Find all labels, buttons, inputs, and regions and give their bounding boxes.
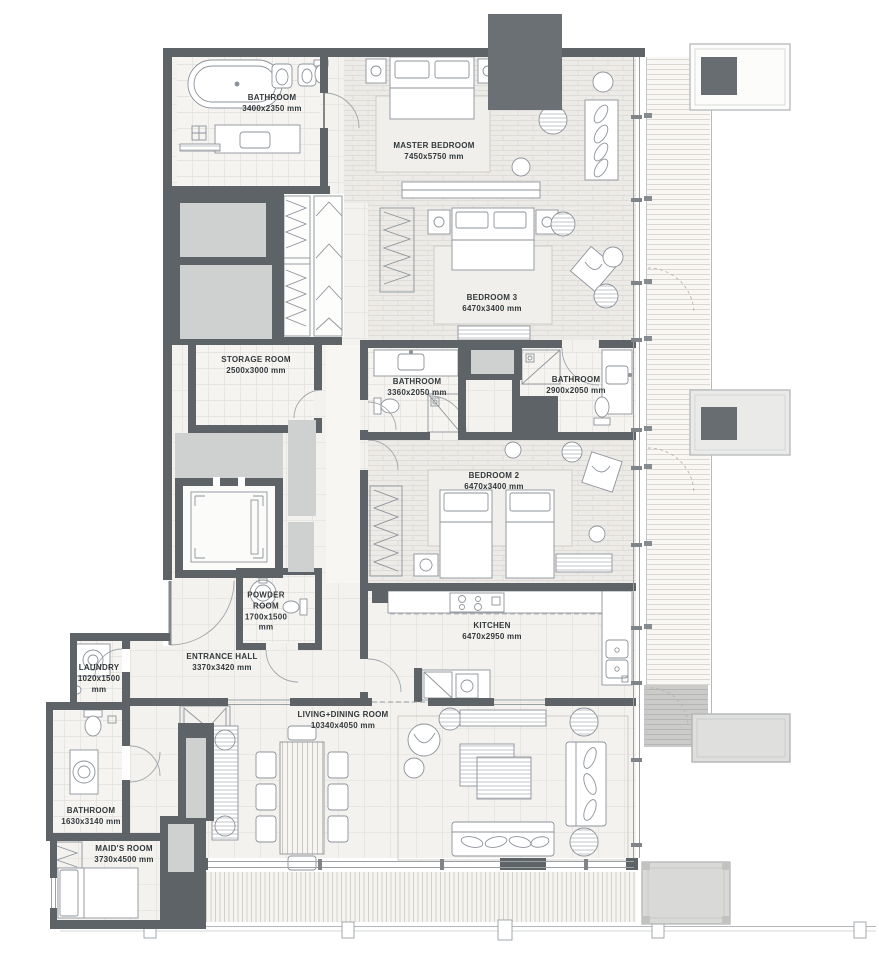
room-dims: 2500x3000 mm (221, 366, 291, 377)
round-table (570, 708, 598, 736)
room-label-bathroom-master: BATHROOM 3400x2350 mm (242, 93, 302, 115)
sofa-right (566, 742, 606, 826)
coffee-table (477, 757, 531, 799)
room-dims: 10340x4050 mm (298, 721, 389, 732)
lounge-armchair (408, 724, 440, 756)
armchair (539, 106, 567, 134)
bench (556, 554, 612, 572)
side-table (505, 442, 521, 458)
console (585, 100, 618, 180)
sink (272, 64, 292, 88)
room-name: KITCHEN (462, 621, 522, 632)
room-name: STORAGE ROOM (221, 355, 291, 366)
sofa-bottom (452, 822, 554, 856)
room-label-bedroom-2: BEDROOM 2 6470x3400 mm (464, 471, 524, 493)
sideboard (212, 726, 238, 840)
room-name: BEDROOM 2 (464, 471, 524, 482)
room-label-laundry: LAUNDRY 1020x1500 mm (71, 663, 127, 695)
bedroom2-bed (440, 490, 492, 578)
pouf (512, 158, 530, 176)
room-label-entrance-hall: ENTRANCE HALL 3370x3420 mm (186, 652, 257, 674)
bedroom3-bed (452, 208, 534, 270)
room-dims: 1700x1500 mm (238, 612, 294, 634)
room-label-bedroom-3: BEDROOM 3 6470x3400 mm (462, 293, 522, 315)
room-dims: 1630x3140 mm (61, 817, 121, 828)
round-table (570, 828, 598, 856)
toilet (595, 397, 609, 417)
room-name: POWDER ROOM (238, 590, 294, 612)
ac-panel-lower (692, 714, 790, 762)
vanity (215, 125, 300, 153)
toilet-tank (374, 398, 381, 414)
room-label-powder-room: POWDER ROOM 1700x1500 mm (238, 590, 294, 633)
stool (589, 526, 605, 542)
side-table (603, 247, 623, 267)
dining-table (280, 742, 324, 854)
room-name: MASTER BEDROOM (393, 141, 474, 152)
room-label-bathroom-3: BATHROOM 3360x2050 mm (387, 377, 447, 399)
side-table (404, 758, 424, 778)
ac-panel-middle (690, 390, 790, 455)
room-name: BATHROOM (242, 93, 302, 104)
kitchen-sink-counter (602, 591, 632, 685)
room-name: BATHROOM (387, 377, 447, 388)
side-table (439, 708, 461, 730)
structural-column (488, 14, 562, 110)
room-label-bathroom-maids: BATHROOM 1630x3140 mm (61, 806, 121, 828)
room-dims: 6470x3400 mm (462, 304, 522, 315)
room-label-bathroom-2: BATHROOM 2900x2050 mm (546, 375, 606, 397)
room-name: MAID'S ROOM (94, 844, 154, 855)
room-name: LIVING+DINING ROOM (298, 710, 389, 721)
nightstand (366, 59, 386, 83)
toilet (381, 399, 399, 413)
room-dims: 3400x2350 mm (242, 104, 302, 115)
room-dims: 3360x2050 mm (387, 388, 447, 399)
room-label-maids-room: MAID'S ROOM 3730x4500 mm (94, 844, 154, 866)
room-dims: 6470x3400 mm (464, 482, 524, 493)
side-table (551, 212, 575, 236)
room-dims: 7450x5750 mm (393, 152, 474, 163)
side-table (562, 442, 582, 462)
nightstand (428, 210, 450, 234)
toilet-tank (300, 599, 307, 615)
room-name: BATHROOM (61, 806, 121, 817)
room-dims: 3370x3420 mm (186, 663, 257, 674)
room-name: LAUNDRY (71, 663, 127, 674)
room-label-master-bedroom: MASTER BEDROOM 7450x5750 mm (393, 141, 474, 163)
toilet (85, 716, 101, 736)
side-table (594, 284, 618, 308)
room-dims: 2900x2050 mm (546, 386, 606, 397)
toilet-tank (594, 418, 610, 425)
master-bed (390, 57, 474, 119)
room-dims: 3730x4500 mm (94, 855, 154, 866)
kitchen-island (422, 670, 490, 700)
kitchen-counter (388, 591, 606, 614)
room-label-kitchen: KITCHEN 6470x2950 mm (462, 621, 522, 643)
media-console (460, 710, 546, 726)
ac-panel-bottom (642, 862, 730, 924)
nightstand (414, 554, 438, 576)
ac-panel-top (690, 44, 790, 110)
floor-plan: BATHROOM 3400x2350 mm MASTER BEDROOM 745… (0, 0, 879, 953)
maid-bed (58, 868, 138, 918)
room-label-living-dining-room: LIVING+DINING ROOM 10340x4050 mm (298, 710, 389, 732)
side-table (593, 72, 613, 92)
room-dims: 6470x2950 mm (462, 632, 522, 643)
room-name: ENTRANCE HALL (186, 652, 257, 663)
vanity (70, 750, 98, 794)
room-dims: 1020x1500 mm (71, 674, 127, 696)
room-name: BATHROOM (546, 375, 606, 386)
bench (458, 326, 530, 340)
room-name: BEDROOM 3 (462, 293, 522, 304)
room-label-storage-room: STORAGE ROOM 2500x3000 mm (221, 355, 291, 377)
bedroom2-bed (506, 490, 554, 578)
